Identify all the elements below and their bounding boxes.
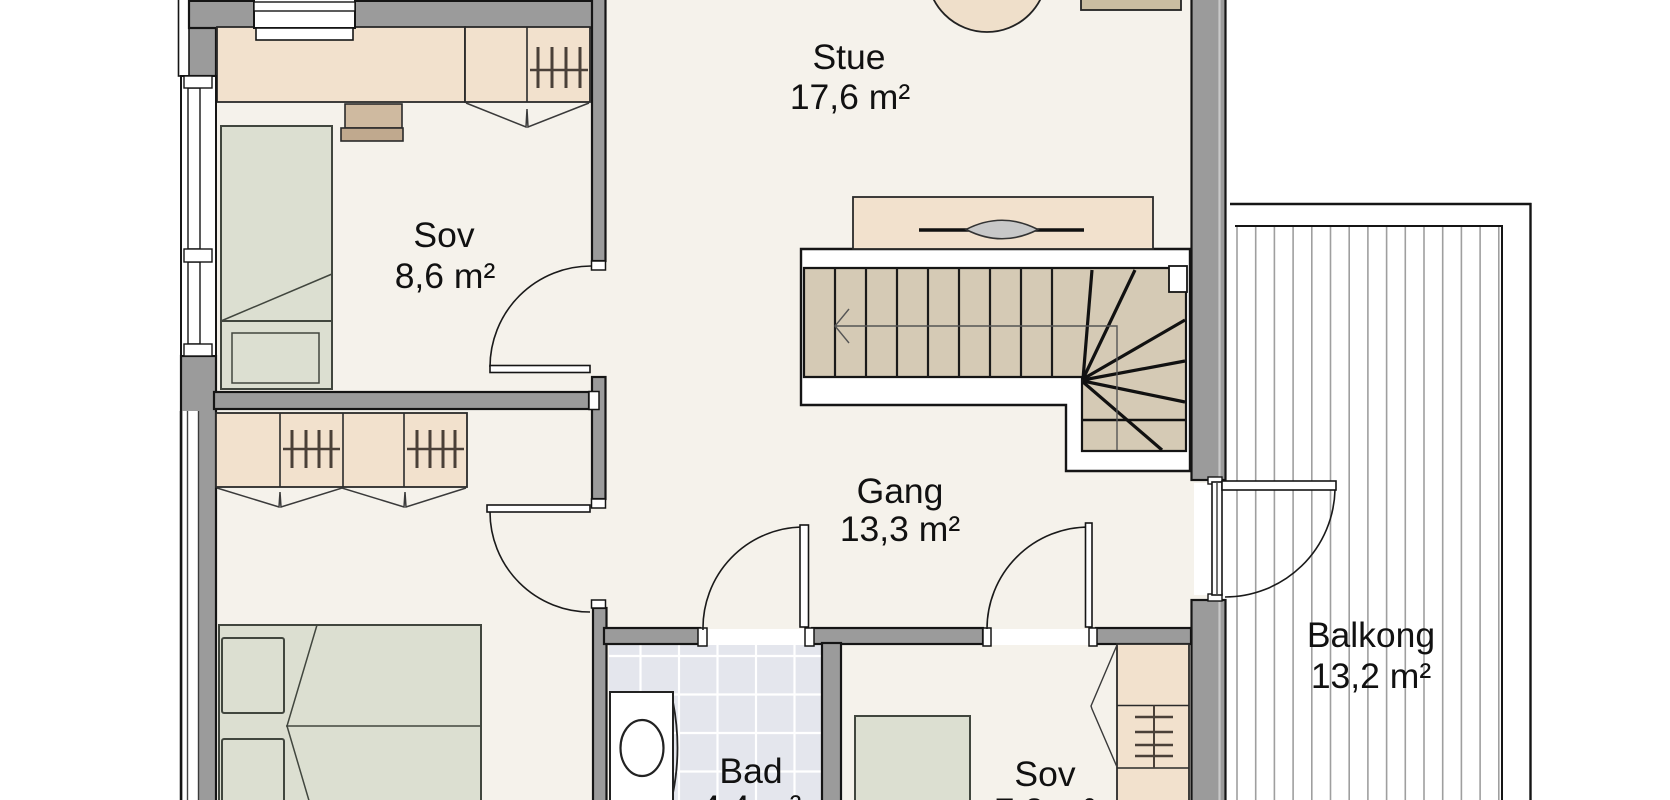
svg-text:Sov: Sov (1014, 754, 1075, 794)
svg-text:13,2 m²: 13,2 m² (1311, 656, 1432, 696)
svg-text:13,3 m²: 13,3 m² (840, 509, 961, 549)
svg-text:Gang: Gang (857, 471, 944, 511)
svg-text:Balkong: Balkong (1307, 615, 1435, 655)
svg-text:8,6 m²: 8,6 m² (395, 256, 496, 296)
svg-text:7,2 m²: 7,2 m² (995, 791, 1096, 800)
svg-text:Stue: Stue (812, 37, 885, 77)
svg-text:Bad: Bad (719, 751, 782, 791)
svg-text:Sov: Sov (413, 215, 474, 255)
svg-text:17,6 m²: 17,6 m² (790, 77, 911, 117)
svg-text:4,4 m²: 4,4 m² (701, 788, 802, 800)
